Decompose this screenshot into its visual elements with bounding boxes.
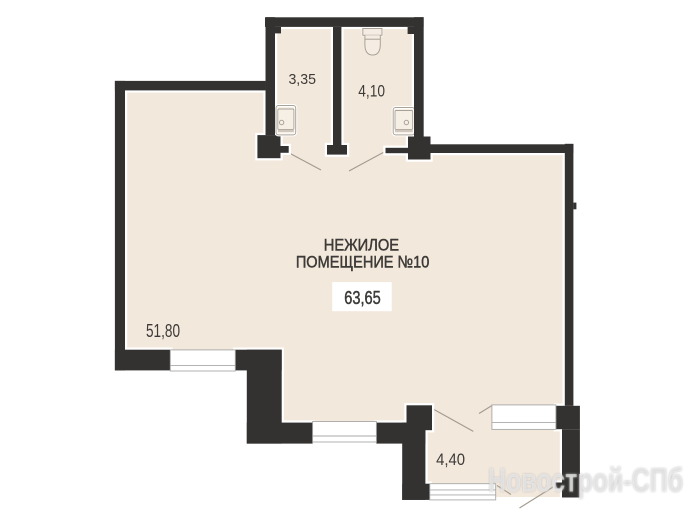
svg-text:4,40: 4,40 — [436, 450, 465, 469]
svg-text:Новострой-СПб: Новострой-СПб — [488, 462, 683, 499]
svg-text:ПОМЕЩЕНИЕ №10: ПОМЕЩЕНИЕ №10 — [296, 253, 430, 272]
svg-text:51,80: 51,80 — [146, 321, 180, 341]
svg-text:3,35: 3,35 — [288, 72, 316, 88]
svg-text:63,65: 63,65 — [344, 287, 381, 308]
svg-text:4,10: 4,10 — [358, 81, 385, 100]
